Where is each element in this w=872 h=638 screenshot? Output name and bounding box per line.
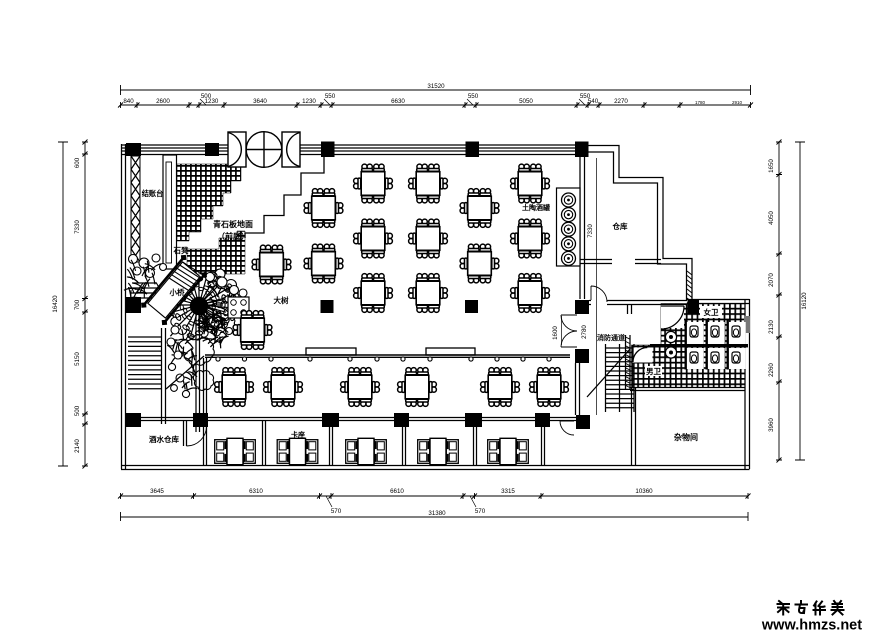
svg-text:500: 500 — [201, 93, 212, 100]
svg-text:消防通道: 消防通道 — [597, 333, 625, 342]
svg-text:2260: 2260 — [768, 363, 775, 377]
svg-text:2140: 2140 — [74, 439, 81, 453]
svg-text:仓库: 仓库 — [612, 221, 628, 231]
svg-text:小桥: 小桥 — [170, 287, 185, 297]
svg-text:2910: 2910 — [732, 100, 743, 105]
svg-text:2780: 2780 — [581, 325, 588, 339]
svg-text:2130: 2130 — [768, 320, 775, 334]
svg-text:6610: 6610 — [390, 488, 404, 495]
svg-text:16120: 16120 — [801, 292, 808, 310]
svg-text:石凳: 石凳 — [173, 245, 189, 255]
svg-text:550: 550 — [468, 93, 479, 100]
svg-text:7330: 7330 — [74, 220, 81, 234]
svg-text:700: 700 — [74, 299, 81, 310]
svg-text:31380: 31380 — [428, 510, 446, 517]
svg-text:大树: 大树 — [274, 295, 289, 305]
svg-text:500: 500 — [74, 405, 81, 416]
svg-text:16420: 16420 — [52, 295, 59, 313]
svg-text:840: 840 — [123, 98, 134, 105]
svg-text:10360: 10360 — [635, 488, 653, 495]
svg-text:550: 550 — [325, 93, 336, 100]
svg-text:卡座: 卡座 — [291, 430, 305, 439]
svg-text:31520: 31520 — [427, 83, 445, 90]
svg-text:女卫: 女卫 — [704, 307, 719, 317]
svg-text:550: 550 — [580, 93, 591, 100]
svg-text:1780: 1780 — [695, 100, 706, 105]
svg-text:1230: 1230 — [302, 98, 316, 105]
svg-text:5150: 5150 — [74, 352, 81, 366]
svg-text:4050: 4050 — [768, 211, 775, 225]
svg-text:www.hmzs.net: www.hmzs.net — [761, 618, 862, 634]
svg-text:2070: 2070 — [768, 273, 775, 287]
svg-text:570: 570 — [475, 508, 486, 515]
svg-text:600: 600 — [74, 157, 81, 168]
svg-text:3645: 3645 — [150, 488, 164, 495]
svg-text:7330: 7330 — [587, 224, 594, 238]
svg-text:3315: 3315 — [501, 488, 515, 495]
svg-text:1600: 1600 — [552, 326, 559, 340]
svg-text:结账台: 结账台 — [141, 189, 164, 198]
svg-text:杂物间: 杂物间 — [674, 432, 698, 442]
svg-text:2600: 2600 — [156, 98, 170, 105]
svg-text:3960: 3960 — [768, 418, 775, 432]
svg-text:1650: 1650 — [768, 159, 775, 173]
svg-text:6310: 6310 — [249, 488, 263, 495]
svg-text:570: 570 — [331, 508, 342, 515]
svg-text:酒水仓库: 酒水仓库 — [149, 434, 179, 444]
svg-text:土陶酒罐: 土陶酒罐 — [522, 203, 550, 212]
svg-text:5050: 5050 — [519, 98, 533, 105]
svg-text:2270: 2270 — [614, 98, 628, 105]
svg-text:青石板地面: 青石板地面 — [213, 219, 253, 229]
svg-text:男卫: 男卫 — [646, 367, 661, 376]
svg-text:3640: 3640 — [253, 98, 267, 105]
svg-text:6630: 6630 — [391, 98, 405, 105]
svg-text:（前庭）: （前庭） — [217, 231, 249, 241]
